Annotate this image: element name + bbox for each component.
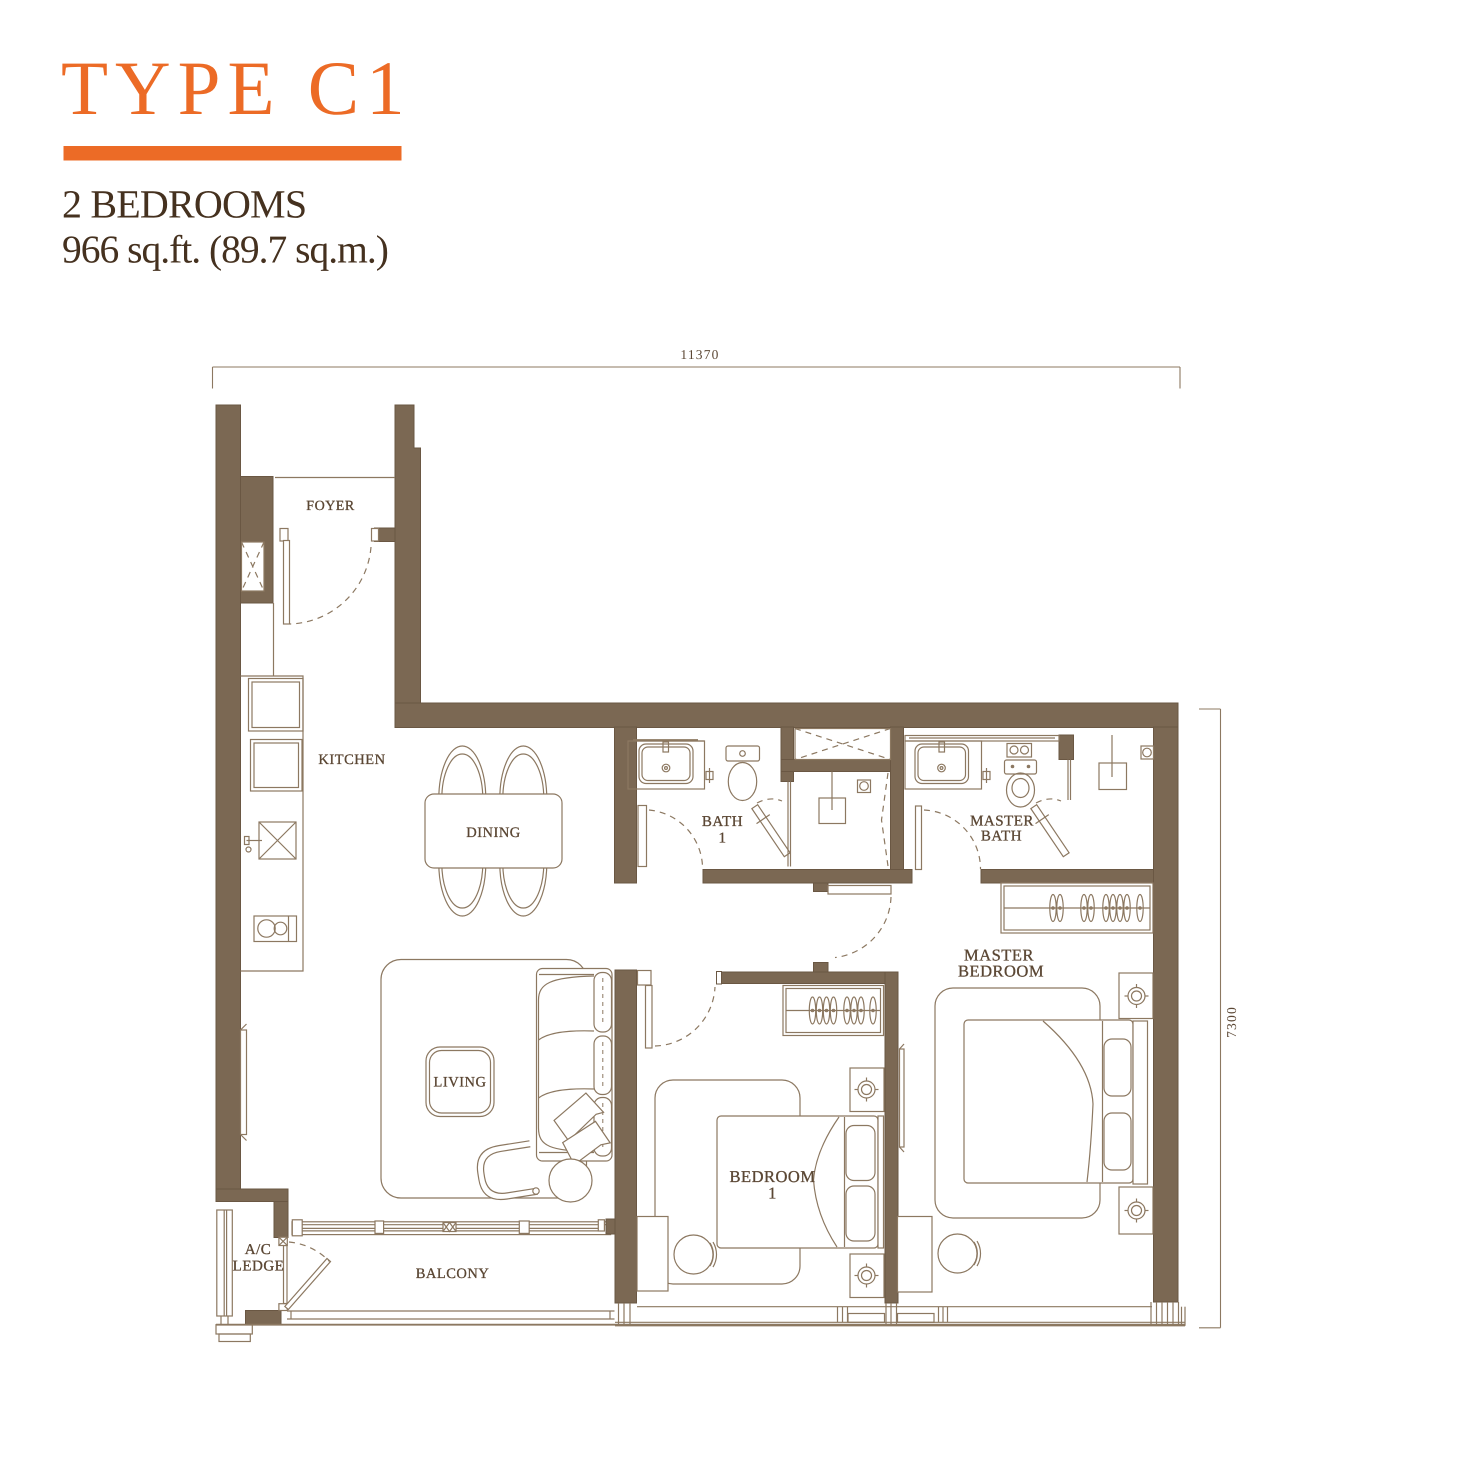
svg-text:2 BEDROOMS: 2 BEDROOMS bbox=[62, 182, 306, 227]
svg-text:BALCONY: BALCONY bbox=[416, 1266, 490, 1282]
svg-text:BATH: BATH bbox=[981, 829, 1022, 845]
svg-text:7300: 7300 bbox=[1224, 1006, 1239, 1038]
svg-text:11370: 11370 bbox=[680, 347, 719, 362]
svg-text:FOYER: FOYER bbox=[306, 499, 355, 514]
svg-text:LIVING: LIVING bbox=[434, 1075, 487, 1091]
svg-text:A/C: A/C bbox=[245, 1242, 272, 1258]
svg-text:MASTER: MASTER bbox=[970, 814, 1034, 830]
svg-text:LEDGE: LEDGE bbox=[233, 1259, 285, 1275]
svg-text:DINING: DINING bbox=[466, 825, 521, 841]
svg-text:KITCHEN: KITCHEN bbox=[318, 752, 385, 768]
svg-text:BEDROOM: BEDROOM bbox=[958, 962, 1044, 981]
svg-text:1: 1 bbox=[768, 1184, 777, 1203]
svg-text:TYPE C1: TYPE C1 bbox=[61, 45, 412, 131]
svg-text:BATH: BATH bbox=[702, 814, 743, 830]
svg-text:1: 1 bbox=[719, 831, 727, 847]
svg-text:966 sq.ft. (89.7 sq.m.): 966 sq.ft. (89.7 sq.m.) bbox=[62, 228, 388, 272]
